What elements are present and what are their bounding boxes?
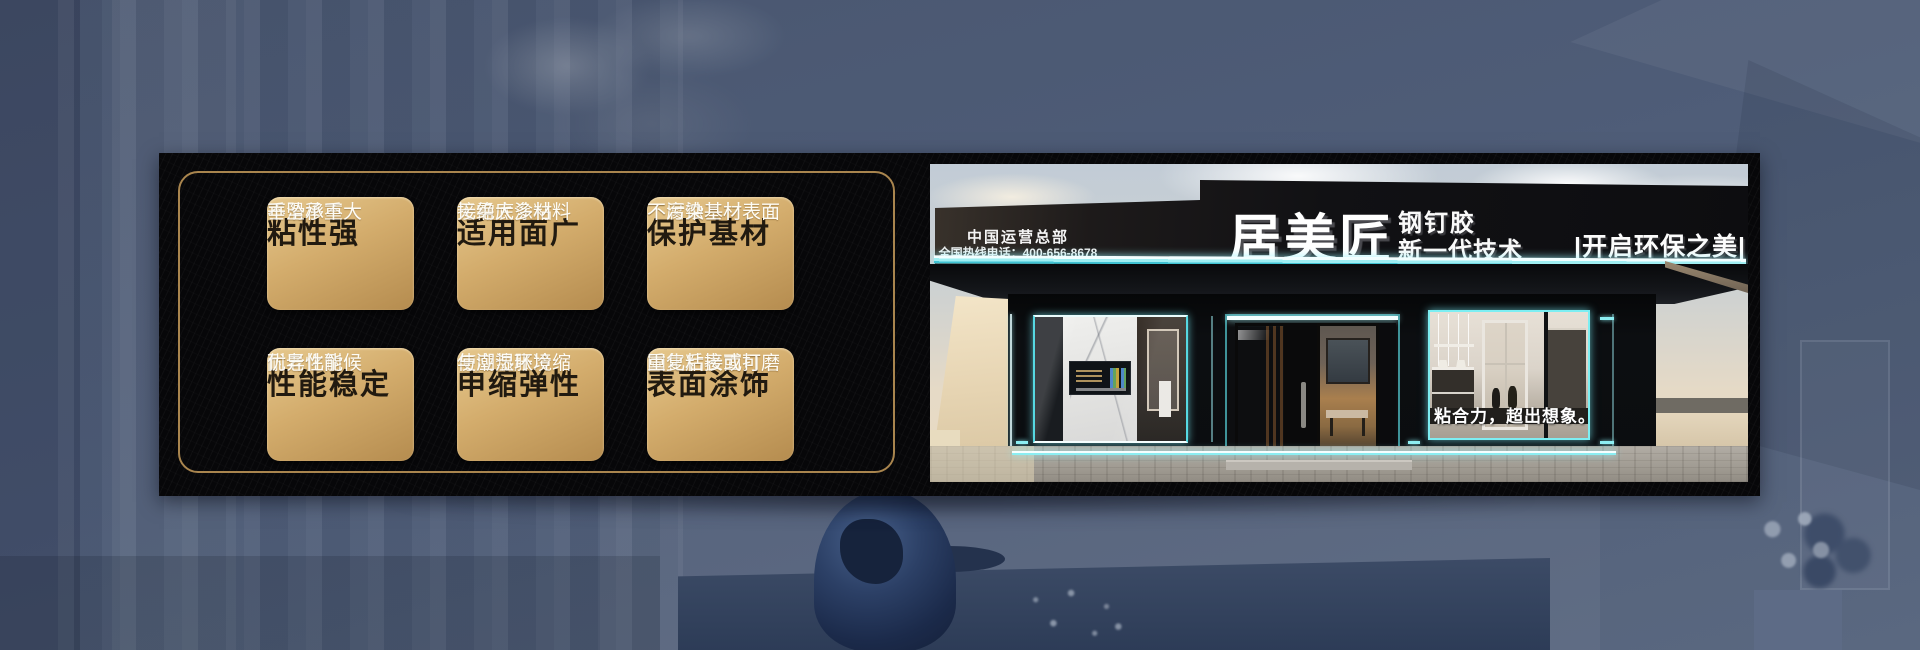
pendant-cord (1438, 314, 1439, 366)
door-handle (1301, 382, 1306, 428)
door-right-frame (1379, 323, 1396, 461)
glass-reflection (1035, 317, 1186, 441)
distant-horizon (1656, 398, 1748, 413)
background-floor-shade (0, 556, 660, 650)
pendant-cord (1458, 314, 1459, 366)
curtain-reflection (1266, 326, 1284, 458)
cyan-tick-mark (1600, 441, 1614, 444)
cyan-tick-mark (1016, 441, 1028, 444)
edge-light-left (1010, 314, 1012, 452)
pendant-cord (1468, 314, 1469, 366)
card-line: 重复粘接或打磨 (647, 351, 780, 377)
card-line: 不污染基材表面 (647, 200, 780, 226)
right-display-window: 粘合力，超出想象。 (1428, 310, 1590, 440)
pillar-light (1211, 316, 1213, 442)
card-line: 优异性能 (267, 351, 343, 377)
feature-card: 申缩弹性 使应热胀冷缩 与潮湿环境 (457, 348, 604, 461)
console-leg (1330, 418, 1333, 436)
cabinet-shelf-line (1432, 392, 1474, 394)
promo-banner: 粘性强 不滑移不 垂坠承重大 适用面广 无需底涂粘 接绝大多材料 保护基材 不腐… (0, 0, 1920, 650)
feature-card: 保护基材 不腐蚀基材 不污染基材表面 (647, 197, 794, 310)
feature-card: 适用面广 无需底涂粘 接绝大多材料 (457, 197, 604, 310)
cyan-tick-mark (1600, 317, 1614, 320)
card-line: 与潮湿环境 (457, 351, 552, 377)
card-line: 垂坠承重大 (267, 200, 362, 226)
ceiling-light-reflection (1238, 330, 1284, 340)
base-light-strip (1012, 451, 1616, 455)
background-pedestal (1754, 590, 1842, 650)
pendant-bar (1434, 344, 1474, 347)
entrance-step (1226, 460, 1412, 470)
entrance-door (1225, 314, 1400, 466)
edge-light-right (1612, 314, 1614, 446)
interior-console-table (1326, 410, 1368, 418)
feature-card: 性能稳定 耐老化耐候 优异性能 (267, 348, 414, 461)
interior-screen (1326, 338, 1370, 384)
door-right-leaf (1317, 323, 1379, 461)
pendant-shade (1456, 360, 1466, 368)
pendant-cord (1448, 314, 1449, 366)
storefront-photo: 中国运营总部 全国热线电话：400-656-8678 居美匠 钢钉胶 新一代技术… (930, 164, 1748, 482)
pendant-shade (1438, 360, 1448, 368)
frame-mullion (1485, 363, 1525, 365)
feature-card: 表面涂饰 固化后表面可 重复粘接或打磨 (647, 348, 794, 461)
door-top-light (1227, 316, 1398, 320)
background-plant-speckles (1018, 583, 1136, 650)
sand-ground-right (1656, 413, 1748, 447)
cyan-tick-mark (1408, 441, 1420, 444)
background-rock-texture (465, 0, 805, 165)
card-line: 接绝大多材料 (457, 200, 571, 226)
left-display-window (1033, 315, 1188, 443)
console-leg (1362, 418, 1365, 436)
feature-card: 粘性强 不滑移不 垂坠承重大 (267, 197, 414, 310)
billboard: 粘性强 不滑移不 垂坠承重大 适用面广 无需底涂粘 接绝大多材料 保护基材 不腐… (159, 153, 1760, 496)
background-flower-blob (1740, 498, 1848, 602)
window-slogan-text: 粘合力，超出想象。 (1434, 402, 1590, 427)
door-left-leaf (1235, 323, 1287, 461)
